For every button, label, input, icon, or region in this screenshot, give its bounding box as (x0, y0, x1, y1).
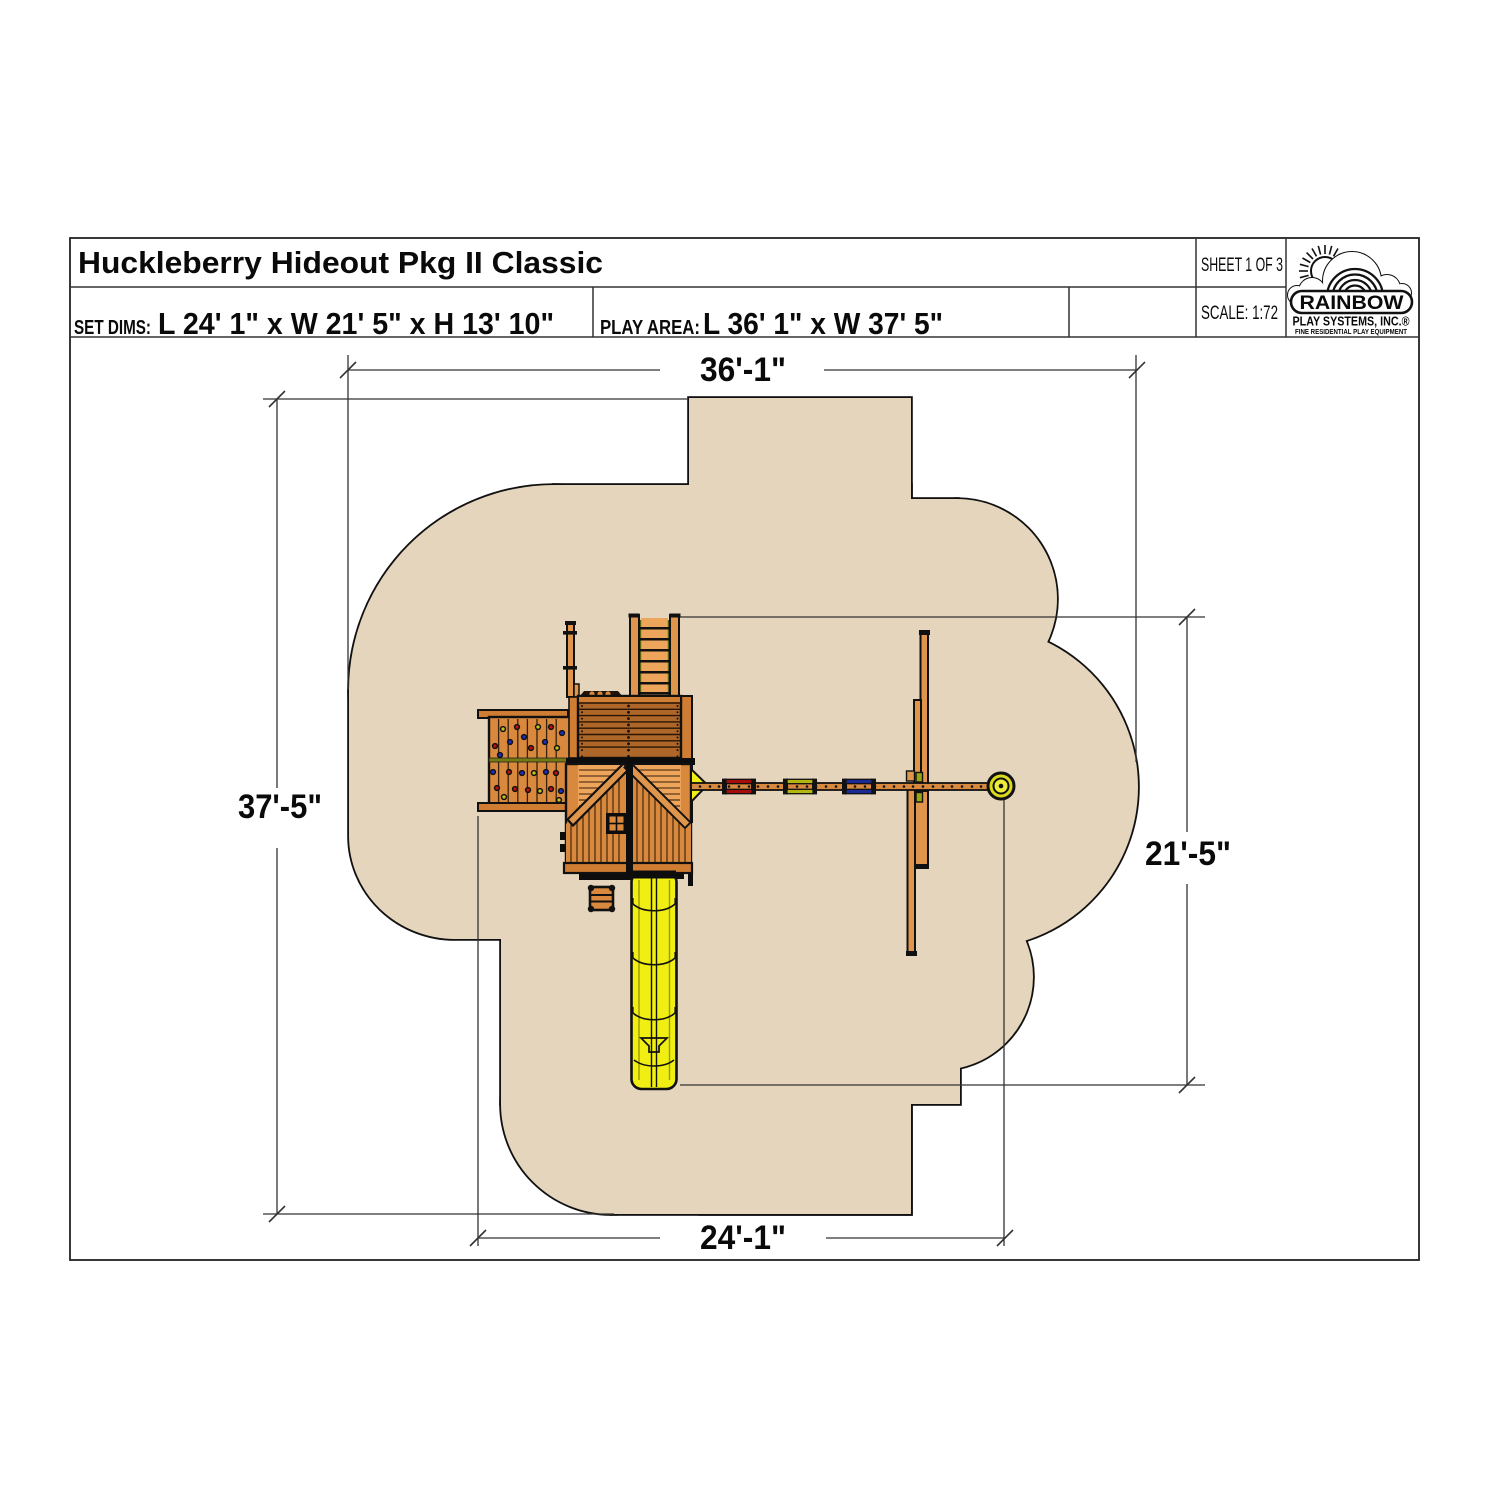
svg-text:21'-5": 21'-5" (1145, 835, 1231, 873)
svg-text:SHEET 1 OF 3: SHEET 1 OF 3 (1201, 255, 1283, 276)
svg-text:SCALE: 1:72: SCALE: 1:72 (1201, 303, 1278, 324)
svg-text:PLAY AREA:: PLAY AREA: (600, 317, 700, 339)
svg-text:Huckleberry Hideout Pkg II Cla: Huckleberry Hideout Pkg II Classic (78, 245, 603, 280)
svg-text:SET DIMS:: SET DIMS: (74, 317, 151, 339)
svg-text:37'-5": 37'-5" (238, 788, 322, 826)
svg-text:L 24' 1" x W 21' 5" x H 13' 10: L 24' 1" x W 21' 5" x H 13' 10" (158, 306, 554, 341)
svg-text:24'-1": 24'-1" (700, 1219, 786, 1257)
svg-text:36'-1": 36'-1" (700, 351, 786, 389)
svg-text:PLAY SYSTEMS, INC.®: PLAY SYSTEMS, INC.® (1293, 314, 1410, 329)
svg-text:FINE RESIDENTIAL PLAY EQUIPMEN: FINE RESIDENTIAL PLAY EQUIPMENT (1295, 329, 1408, 336)
svg-text:L 36' 1" x W 37' 5": L 36' 1" x W 37' 5" (703, 306, 943, 341)
svg-text:RAINBOW: RAINBOW (1300, 293, 1404, 314)
